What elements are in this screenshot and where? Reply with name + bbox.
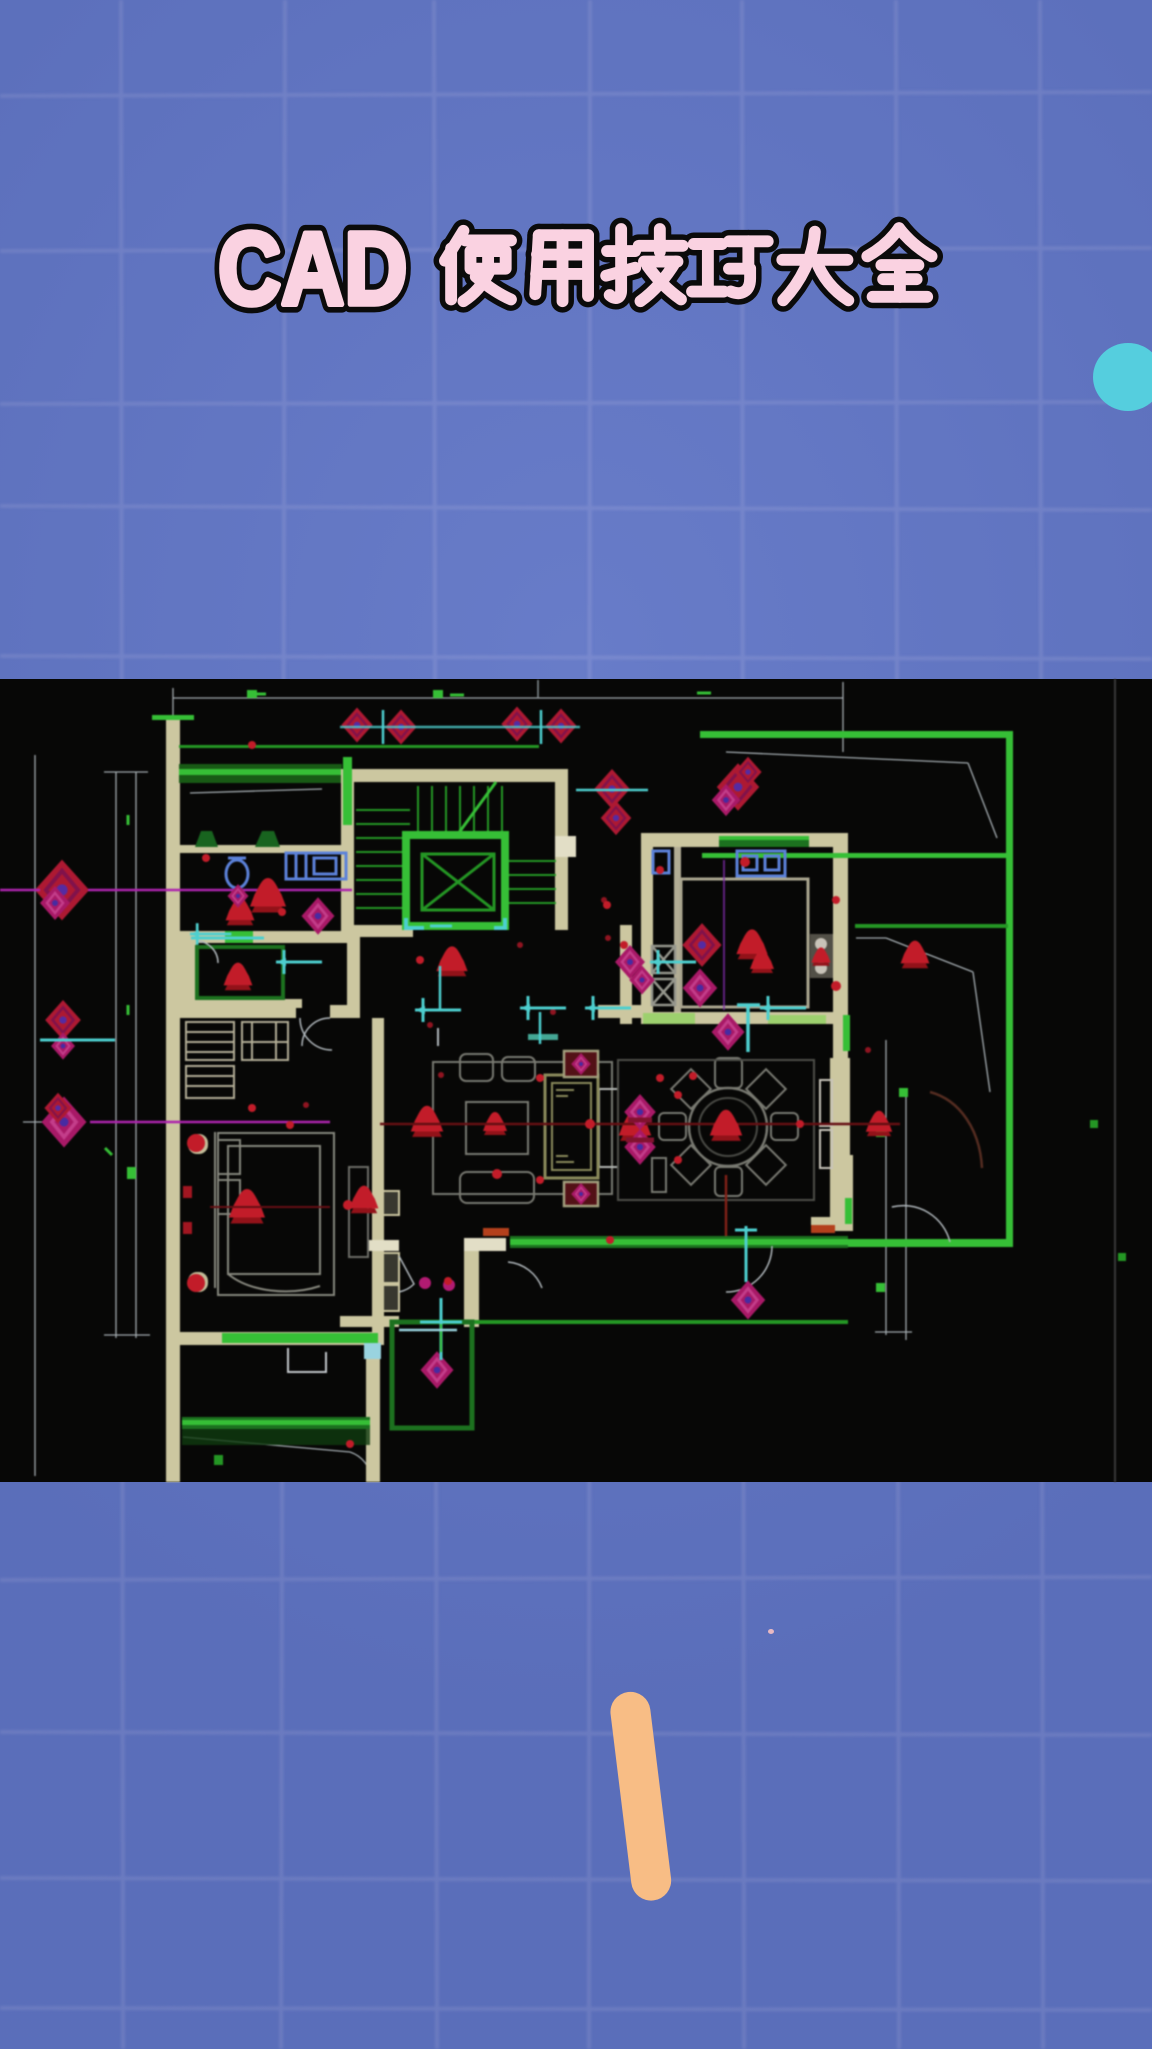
svg-text:CAD: CAD <box>218 212 407 326</box>
